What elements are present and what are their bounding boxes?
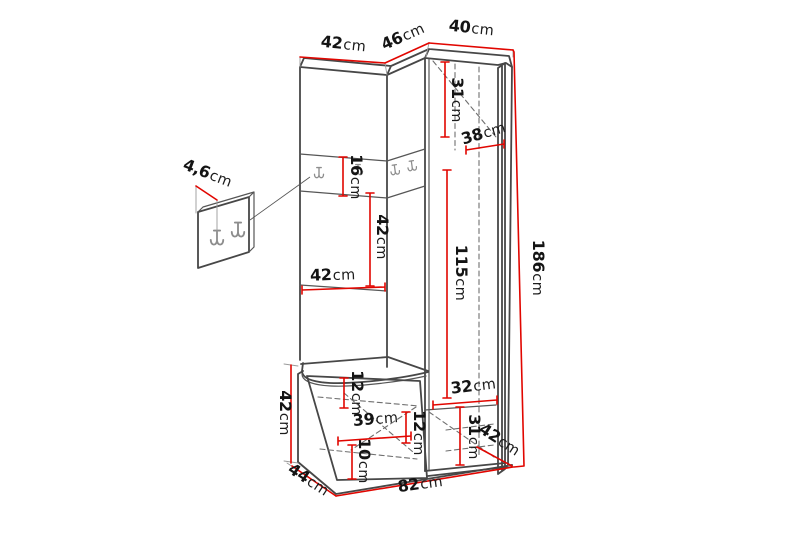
dimension-right-section-width: 40cm	[429, 16, 513, 50]
dim-label-middle-gap-height: 42cm	[373, 214, 392, 260]
dimension-bench-height: 42cm	[276, 365, 295, 463]
right-back-edge	[508, 67, 512, 466]
dimension-left-side-depth: 44cm	[285, 459, 336, 500]
dimension-hook-rail-height: 16cm	[339, 154, 366, 200]
dim-label-upper-inner-height: 31cm	[448, 77, 467, 123]
dim-label-middle-shelf-width: 42cm	[310, 264, 356, 285]
dim-label-door-inner-height: 115cm	[452, 245, 471, 301]
dim-label-bench-bottom-gap: 10cm	[355, 438, 374, 484]
dim-label-right-width: 40cm	[448, 16, 495, 40]
dimension-top-left-section-width: 42cm	[300, 32, 385, 63]
dimension-total-height: 186cm	[513, 50, 548, 467]
dimension-bench-bottom-gap-height: 10cm	[348, 438, 374, 484]
dim-label-bench-height: 42cm	[276, 390, 295, 436]
dim-label-hook-panel-depth: 4,6cm	[181, 155, 236, 191]
dim-label-total-height: 186cm	[529, 240, 548, 296]
corner-section-face	[387, 58, 425, 471]
dim-label-seat-to-shelf: 12cm	[348, 370, 367, 416]
diagram-canvas: 42cm 46cm 40cm 31cm 38cm 16cm 42cm 42cm …	[0, 0, 800, 533]
hook-panel-detail	[198, 177, 310, 268]
dimension-hook-panel-depth: 4,6cm	[181, 155, 236, 200]
diagram-page: 42cm 46cm 40cm 31cm 38cm 16cm 42cm 42cm …	[0, 0, 800, 533]
dimension-corner-section-width: 46cm	[378, 18, 429, 63]
dim-label-top-left-width: 42cm	[320, 32, 367, 56]
dim-label-hook-rail-height: 16cm	[347, 154, 366, 200]
dim-label-bench-inner-width: 39cm	[352, 407, 399, 430]
dim-label-bench-shelf-gap: 12cm	[410, 410, 429, 456]
dim-label-corner-width: 46cm	[378, 18, 427, 54]
dim-label-left-side-depth: 44cm	[285, 459, 334, 500]
dimension-bench-shelf-gap-height: 12cm	[402, 410, 429, 456]
dim-label-total-width: 82cm	[396, 471, 444, 496]
